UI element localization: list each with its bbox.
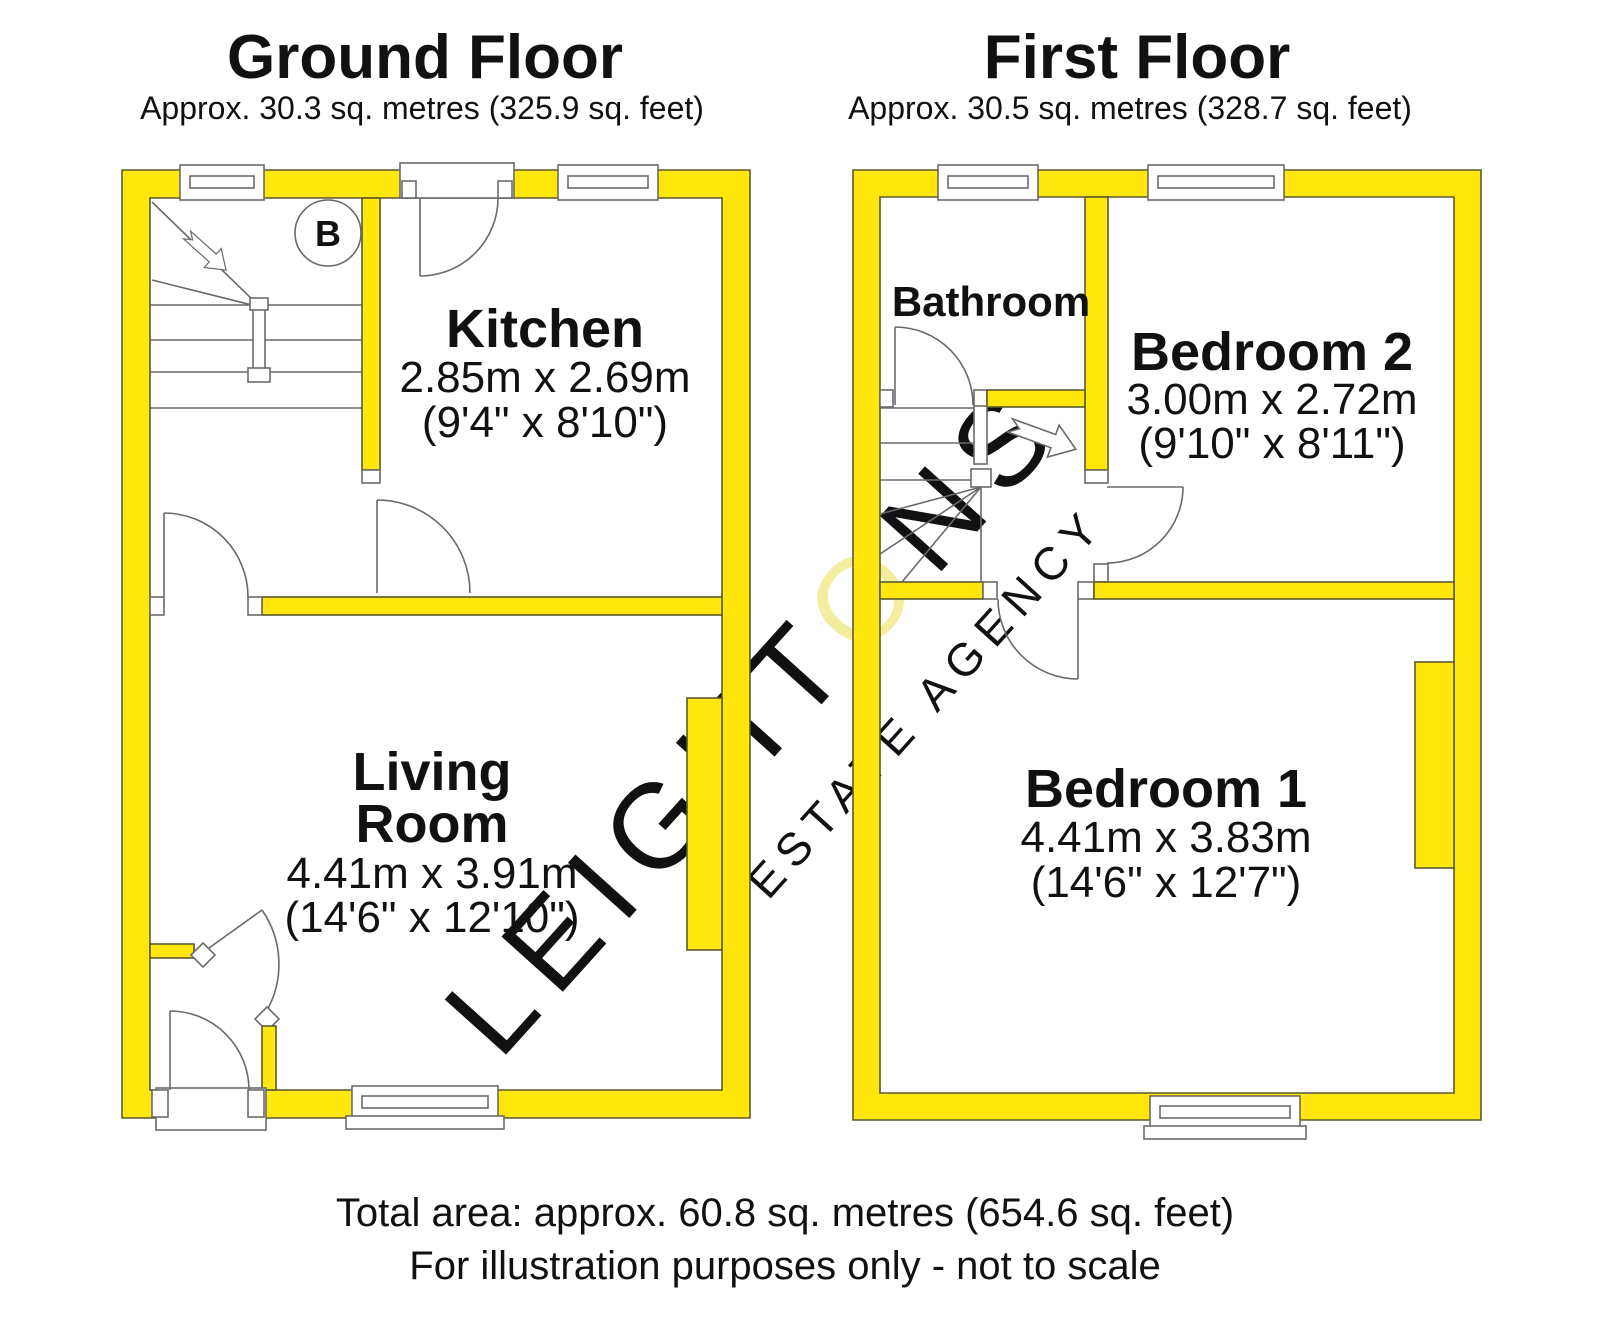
gf-front-door (152, 1011, 266, 1130)
gf-living-room-door (164, 513, 248, 597)
gf-stair-direction-arrow (179, 225, 235, 279)
floorplan-canvas: LEIGHTONS ESTATE AGENCY Ground Floor App… (0, 0, 1600, 1333)
ff-stair-handrail (974, 406, 987, 464)
living-dim-metric: 4.41m x 3.91m (286, 849, 577, 898)
gf-window-top-left (180, 165, 264, 200)
watermark-brand: LEIGHTONS (419, 356, 1090, 1080)
footer: Total area: approx. 60.8 sq. metres (654… (336, 1191, 1234, 1288)
ff-bathroom-wall (880, 390, 1085, 407)
ff-wall-cap (1085, 470, 1108, 483)
ff-bath-bed2-wall (1085, 197, 1108, 470)
living-dim-imperial: (14'6" x 12'10") (284, 893, 579, 942)
gf-chimney-breast (687, 698, 722, 950)
ff-bedroom2-door (1107, 487, 1183, 563)
ff-window-top-right (1148, 165, 1284, 200)
floorplan-page: LEIGHTONS ESTATE AGENCY Ground Floor App… (0, 0, 1600, 1333)
disclaimer-text: For illustration purposes only - not to … (409, 1244, 1160, 1288)
ff-window-bottom (1144, 1096, 1306, 1139)
bedroom1-dim-imperial: (14'6" x 12'7") (1031, 858, 1302, 907)
gf-kitchen-door (377, 500, 470, 593)
gf-back-door (400, 163, 514, 276)
ff-chimney-breast (1415, 662, 1454, 868)
watermark: LEIGHTONS ESTATE AGENCY (419, 356, 1146, 1131)
kitchen-name: Kitchen (446, 299, 644, 359)
bedroom1-dim-metric: 4.41m x 3.83m (1020, 813, 1311, 862)
gf-boiler-symbol: B (295, 200, 361, 266)
gf-boiler-label: B (315, 213, 341, 254)
bedroom2-dim-metric: 3.00m x 2.72m (1126, 375, 1417, 424)
ff-bedroom2-label: Bedroom 2 3.00m x 2.72m (9'10" x 8'11") (1126, 322, 1417, 468)
ground-floor-area: Approx. 30.3 sq. metres (325.9 sq. feet) (140, 90, 704, 126)
living-name-line2: Room (356, 794, 509, 854)
kitchen-dim-metric: 2.85m x 2.69m (399, 353, 690, 402)
total-area-text: Total area: approx. 60.8 sq. metres (654… (336, 1191, 1234, 1235)
ff-bedroom1-label: Bedroom 1 4.41m x 3.83m (14'6" x 12'7") (1020, 759, 1311, 907)
gf-kitchen-label: Kitchen 2.85m x 2.69m (9'4" x 8'10") (399, 299, 690, 447)
gf-window-bottom (346, 1086, 504, 1129)
gf-kitchen-living-wall (262, 597, 722, 615)
living-name-line1: Living (353, 742, 512, 802)
first-floor-title: First Floor (984, 23, 1291, 92)
kitchen-dim-imperial: (9'4" x 8'10") (422, 398, 668, 447)
first-floor-area: Approx. 30.5 sq. metres (328.7 sq. feet) (848, 90, 1412, 126)
gf-wall-cap (362, 470, 380, 483)
bedroom2-name: Bedroom 2 (1131, 322, 1413, 382)
bedroom2-dim-imperial: (9'10" x 8'11") (1138, 419, 1405, 468)
gf-living-door-jambs (150, 597, 262, 615)
ff-window-top-left (938, 165, 1038, 200)
gf-hall-kitchen-wall (362, 198, 380, 470)
ground-floor-title: Ground Floor (227, 23, 623, 92)
gf-living-room-label: Living Room 4.41m x 3.91m (14'6" x 12'10… (284, 742, 579, 942)
bedroom1-name: Bedroom 1 (1025, 759, 1307, 819)
ground-floor-plan: Ground Floor Approx. 30.3 sq. metres (32… (122, 23, 750, 1130)
bathroom-name: Bathroom (892, 278, 1090, 325)
gf-window-top-right (558, 165, 658, 200)
